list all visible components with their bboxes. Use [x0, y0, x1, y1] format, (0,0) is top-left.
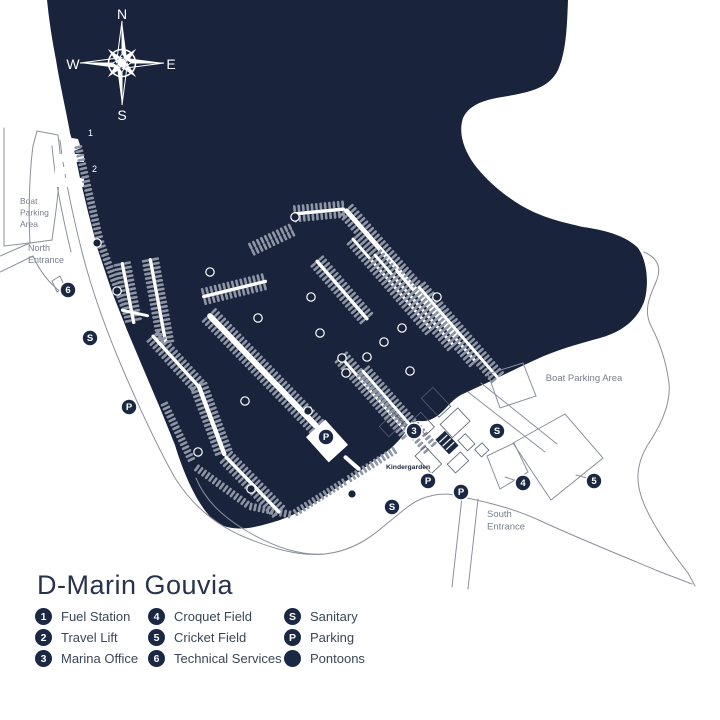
pontoon-marker-icon [254, 314, 262, 322]
pontoon-marker-icon [348, 490, 356, 498]
road-outline [468, 499, 478, 589]
legend-label: Sanitary [310, 609, 358, 624]
map-label-boat-parking-area-left: Boat [20, 196, 38, 206]
map-badge-p: P [318, 429, 334, 445]
map-badge-s: S [489, 423, 505, 439]
legend-column-2: 4 Croquet Field 5 Cricket Field 6 Techni… [148, 608, 282, 671]
pontoon-marker-icon [241, 397, 249, 405]
pontoon-marker-icon [342, 369, 350, 377]
map-badge-p: P [121, 399, 137, 415]
map-label-north-entrance: Entrance [28, 255, 64, 265]
legend-label: Pontoons [310, 651, 365, 666]
road-outline [452, 497, 462, 587]
legend-item-sanitary: S Sanitary [284, 608, 365, 625]
pontoon-marker-icon [291, 213, 299, 221]
pontoon-marker-icon [307, 293, 315, 301]
badge-2-icon: 2 [35, 629, 52, 646]
map-label-south-entrance: Entrance [487, 522, 525, 533]
legend-label: Croquet Field [174, 609, 252, 624]
pontoon-marker-icon [206, 268, 214, 276]
pontoon-marker-icon [247, 485, 255, 493]
road-outline [638, 252, 695, 586]
svg-text:P: P [126, 402, 133, 413]
legend-label: Fuel Station [61, 609, 130, 624]
legend-item-technical-services: 6 Technical Services [148, 650, 282, 667]
map-label-boat-parking-area-left: Area [20, 219, 38, 229]
map-badge-s: S [384, 499, 400, 515]
map-label-kindergarden: Kindergarden [386, 464, 430, 471]
svg-text:S: S [389, 502, 395, 513]
road-outline [468, 392, 545, 452]
map-badge-4: 4 [515, 475, 531, 491]
legend-item-fuel-station: 1 Fuel Station [35, 608, 138, 625]
legend-column-1: 1 Fuel Station 2 Travel Lift 3 Marina Of… [35, 608, 138, 671]
building-outline [447, 452, 468, 473]
travel-lift-dock [55, 154, 61, 187]
compass-east-label: E [166, 56, 175, 72]
svg-text:6: 6 [65, 285, 70, 296]
badge-1-icon: 1 [35, 608, 52, 625]
map-badge-5: 5 [586, 473, 602, 489]
svg-text:S: S [494, 426, 500, 437]
map-label-fuel-station-number: 1 [88, 128, 93, 138]
map-badge-p: P [453, 484, 469, 500]
legend-label: Technical Services [174, 651, 282, 666]
legend-label: Marina Office [61, 651, 138, 666]
badge-6-icon: 6 [148, 650, 165, 667]
legend-item-cricket-field: 5 Cricket Field [148, 629, 282, 646]
map-badge-6: 6 [60, 282, 76, 298]
badge-s-icon: S [284, 608, 301, 625]
legend-item-pontoons: Pontoons [284, 650, 365, 667]
badge-4-icon: 4 [148, 608, 165, 625]
svg-text:P: P [323, 432, 330, 443]
svg-text:3: 3 [411, 426, 416, 437]
map-label-boat-parking-area-right: Boat Parking Area [546, 373, 623, 384]
water-area [47, 0, 647, 528]
legend-label: Cricket Field [174, 630, 246, 645]
legend-label: Travel Lift [61, 630, 118, 645]
map-label-travel-lift-number: 2 [92, 164, 97, 174]
legend-label: Parking [310, 630, 354, 645]
pontoon-marker-icon [304, 407, 312, 415]
pontoon-marker-icon [316, 329, 324, 337]
svg-text:S: S [87, 333, 93, 344]
pontoon-dot-icon [284, 650, 301, 667]
svg-text:5: 5 [591, 476, 597, 487]
compass-south-label: S [117, 107, 126, 123]
marina-map-page: NESW6SPP3SPPS45BoatParkingAreaNorthEntra… [0, 0, 720, 720]
marina-map-canvas: NESW6SPP3SPPS45BoatParkingAreaNorthEntra… [0, 0, 720, 600]
compass-north-label: N [117, 6, 127, 22]
pontoon-marker-icon [194, 448, 202, 456]
pontoon-marker-icon [406, 367, 414, 375]
map-label-south-entrance: South [487, 509, 512, 520]
map-badge-p: P [420, 473, 436, 489]
building-outline [475, 443, 489, 457]
building-outline [458, 434, 475, 451]
pontoon-marker-icon [113, 287, 121, 295]
pontoon-marker-icon [338, 354, 346, 362]
map-label-boat-parking-area-left: Parking [20, 208, 49, 218]
legend-column-3: S Sanitary P Parking Pontoons [284, 608, 365, 671]
compass-west-label: W [66, 56, 80, 72]
legend-item-parking: P Parking [284, 629, 365, 646]
pontoon-marker-icon [380, 338, 388, 346]
legend-item-croquet-field: 4 Croquet Field [148, 608, 282, 625]
badge-p-icon: P [284, 629, 301, 646]
badge-3-icon: 3 [35, 650, 52, 667]
badge-5-icon: 5 [148, 629, 165, 646]
map-badge-3: 3 [406, 423, 422, 439]
legend-item-marina-office: 3 Marina Office [35, 650, 138, 667]
pontoon-marker-icon [398, 324, 406, 332]
pontoon-marker-icon [433, 293, 441, 301]
pontoon-marker-icon [93, 239, 101, 247]
map-badge-s: S [82, 330, 98, 346]
legend-item-travel-lift: 2 Travel Lift [35, 629, 138, 646]
svg-text:P: P [458, 487, 465, 498]
pontoon-marker-icon [363, 353, 371, 361]
page-title: D-Marin Gouvia [37, 570, 233, 601]
map-label-north-entrance: North [28, 243, 50, 253]
svg-text:4: 4 [520, 478, 526, 489]
svg-text:P: P [425, 476, 432, 487]
